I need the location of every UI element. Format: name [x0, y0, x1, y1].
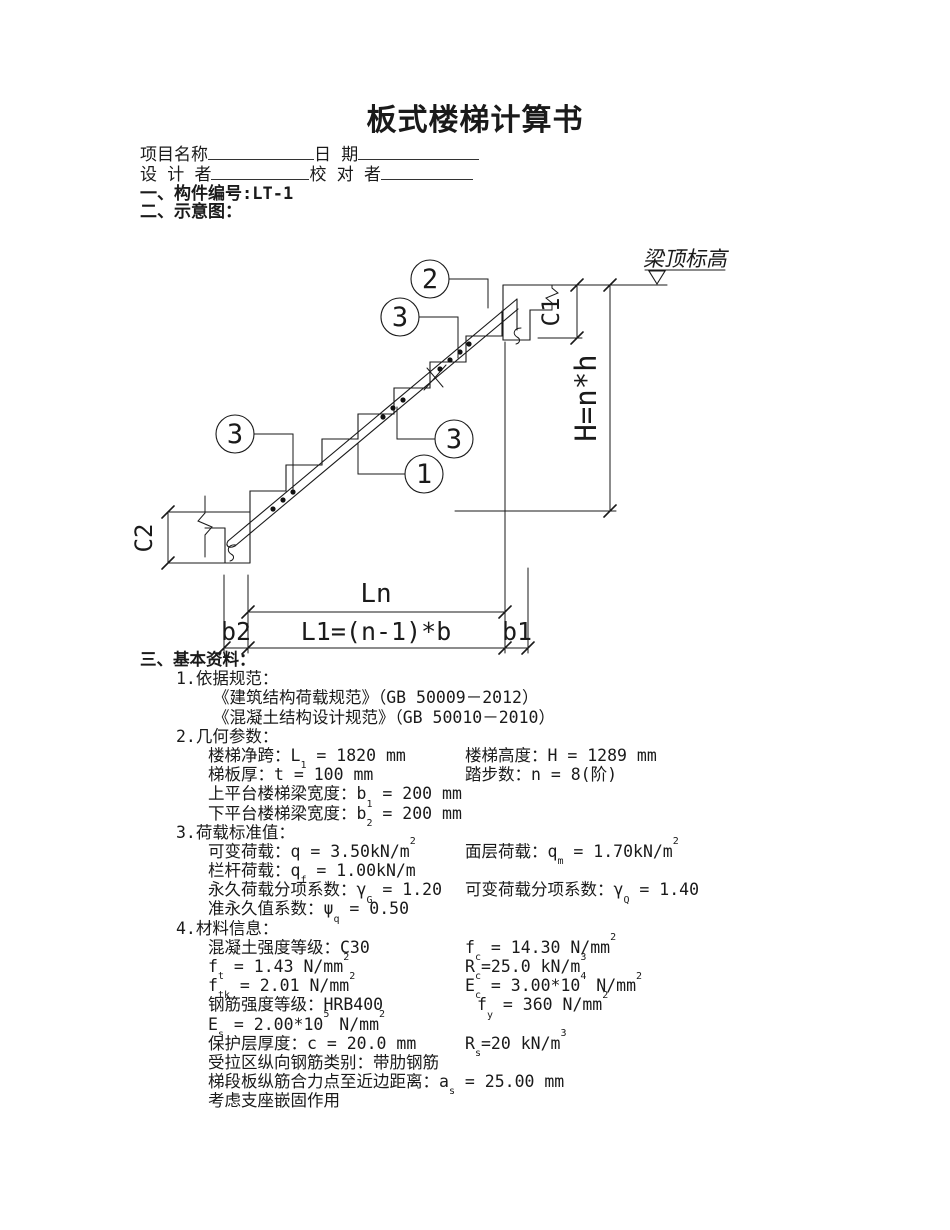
spec-row: 保护层厚度：c = 20.0 mmRs=20 kN/m3: [140, 1034, 940, 1053]
dim-c1: C1: [537, 279, 583, 344]
callouts: 2 3 3 3 1: [216, 260, 488, 493]
spec-right: fy = 360 N/mm2: [477, 995, 608, 1014]
spec-left: 下平台楼梯梁宽度：b2 = 200 mm: [208, 804, 462, 823]
subsection-title: 4.材料信息：: [140, 919, 940, 938]
spec-right: 踏步数：n = 8(阶): [465, 765, 617, 784]
callout-number: 3: [227, 419, 243, 450]
spec-right: fc = 14.30 N/mm2: [465, 938, 616, 957]
spec-row: 受拉区纵向钢筋类别：带肋钢筋: [140, 1053, 940, 1072]
spec-left: 受拉区纵向钢筋类别：带肋钢筋: [208, 1053, 439, 1072]
spec-left: ft = 1.43 N/mm2: [208, 957, 349, 976]
spec-left: ftk = 2.01 N/mm2: [208, 976, 355, 995]
callout-number: 3: [392, 302, 408, 333]
spec-right: Ec = 3.00*104 N/mm2: [465, 976, 642, 995]
break-symbol: [198, 496, 212, 557]
spec-left: 可变荷载：q = 3.50kN/m2: [208, 842, 416, 861]
stairs-outline: [250, 311, 502, 563]
spec-left: 准永久值系数：ψq = 0.50: [208, 899, 409, 918]
ln-dim-label: Ln: [360, 579, 391, 609]
spec-row: Es = 2.00*105 N/mm2: [140, 1015, 940, 1034]
spec-row: ft = 1.43 N/mm2Rc=25.0 kN/m3: [140, 957, 940, 976]
spec-right: Rs=20 kN/m3: [465, 1034, 566, 1053]
spec-row: 梯板厚：t = 100 mm踏步数：n = 8(阶): [140, 765, 940, 784]
subsection-title: 1.依据规范：: [140, 669, 940, 688]
subsection-title: 2.几何参数：: [140, 727, 940, 746]
spec-row: 《混凝土结构设计规范》（GB 50010－2010）: [140, 708, 940, 727]
dim-height: H=n*h: [455, 279, 616, 517]
dim-c2: C2: [130, 506, 174, 569]
rebar-hook: [514, 328, 521, 344]
callout-number: 2: [422, 264, 438, 295]
calc-sheet-page: 板式楼梯计算书 项目名称日 期 设 计 者校 对 者 一、构件编号:LT-1 二…: [0, 0, 950, 1230]
basic-info-section: 三、基本资料： 1.依据规范：《建筑结构荷载规范》（GB 50009－2012）…: [140, 650, 940, 1111]
spec-row: 楼梯净跨：L1 = 1820 mm楼梯高度：H = 1289 mm: [140, 746, 940, 765]
c1-dim-label: C1: [537, 298, 565, 327]
basic-info-rows: 1.依据规范：《建筑结构荷载规范》（GB 50009－2012）《混凝土结构设计…: [140, 669, 940, 1110]
spec-row: 梯段板纵筋合力点至近边距离：as = 25.00 mm: [140, 1072, 940, 1091]
spec-row: 钢筋强度等级：HRB400fy = 360 N/mm2: [140, 995, 940, 1014]
spec-left: 《建筑结构荷载规范》（GB 50009－2012）: [213, 688, 538, 707]
spec-row: 可变荷载：q = 3.50kN/m2面层荷载：qm = 1.70kN/m2: [140, 842, 940, 861]
spec-right: Rc=25.0 kN/m3: [465, 957, 586, 976]
spec-left: 栏杆荷载：qf = 1.00kN/m: [208, 861, 416, 880]
spec-row: 下平台楼梯梁宽度：b2 = 200 mm: [140, 804, 940, 823]
subsection-title: 3.荷载标准值：: [140, 823, 940, 842]
upper-landing: [503, 285, 667, 344]
height-formula-label: H=n*h: [569, 354, 603, 441]
spec-left: Es = 2.00*105 N/mm2: [208, 1015, 385, 1034]
lower-landing: [168, 496, 250, 563]
staircase-sketch: 梁顶标高 H=n*h C1 C2: [0, 0, 950, 680]
b1-dim-label: b1: [502, 617, 532, 646]
rebar-dots: [270, 341, 471, 511]
spec-left: 保护层厚度：c = 20.0 mm: [208, 1034, 416, 1053]
spec-right: 楼梯高度：H = 1289 mm: [465, 746, 657, 765]
spec-left: 永久荷载分项系数：γG = 1.20: [208, 880, 442, 899]
spec-left: 考虑支座嵌固作用: [208, 1091, 340, 1110]
beam-top-elevation-label: 梁顶标高: [642, 247, 731, 271]
spec-left: 上平台楼梯梁宽度：b1 = 200 mm: [208, 784, 462, 803]
spec-row: 考虑支座嵌固作用: [140, 1091, 940, 1110]
spec-row: 永久荷载分项系数：γG = 1.20可变荷载分项系数：γQ = 1.40: [140, 880, 940, 899]
spec-left: 钢筋强度等级：HRB400: [208, 995, 383, 1014]
elevation-marker: 梁顶标高: [642, 247, 731, 284]
spec-row: 上平台楼梯梁宽度：b1 = 200 mm: [140, 784, 940, 803]
spec-left: 楼梯净跨：L1 = 1820 mm: [208, 746, 406, 765]
spec-row: ftk = 2.01 N/mm2Ec = 3.00*104 N/mm2: [140, 976, 940, 995]
spec-row: 混凝土强度等级：C30fc = 14.30 N/mm2: [140, 938, 940, 957]
section-basic-info: 三、基本资料：: [140, 650, 940, 669]
l1-formula-label: L1=(n-1)*b: [301, 617, 452, 646]
spec-right: 面层荷载：qm = 1.70kN/m2: [465, 842, 679, 861]
spec-right: 可变荷载分项系数：γQ = 1.40: [465, 880, 699, 899]
callout-number: 1: [416, 459, 432, 490]
spec-row: 栏杆荷载：qf = 1.00kN/m: [140, 861, 940, 880]
b2-dim-label: b2: [221, 617, 251, 646]
dim-bottom: Ln L1=(n-1)*b b2 b1: [218, 342, 534, 654]
spec-row: 《建筑结构荷载规范》（GB 50009－2012）: [140, 688, 940, 707]
spec-left: 梯段板纵筋合力点至近边距离：as = 25.00 mm: [208, 1072, 564, 1091]
c2-dim-label: C2: [130, 524, 158, 553]
callout-number: 3: [446, 424, 462, 455]
spec-left: 梯板厚：t = 100 mm: [208, 765, 373, 784]
spec-row: 准永久值系数：ψq = 0.50: [140, 899, 940, 918]
elevation-triangle-icon: [649, 271, 665, 284]
spec-left: 《混凝土结构设计规范》（GB 50010－2010）: [213, 708, 555, 727]
